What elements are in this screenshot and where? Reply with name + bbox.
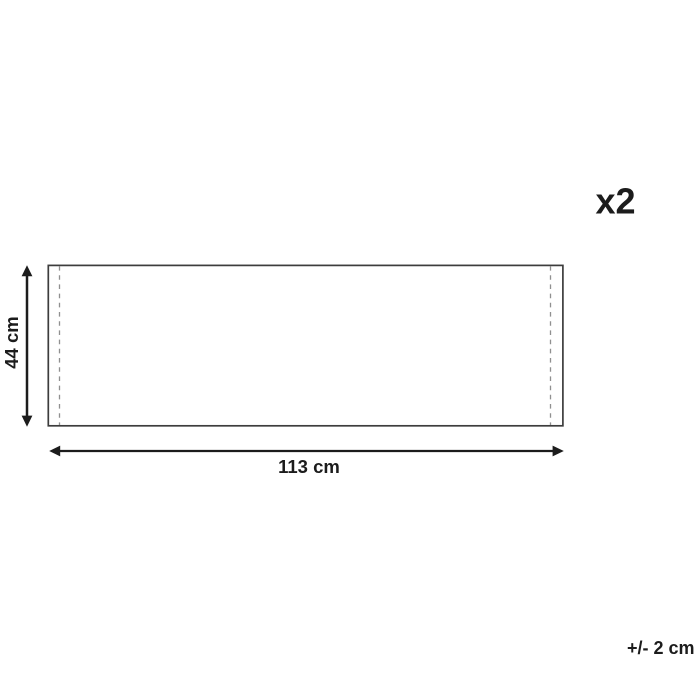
- svg-text:113 cm: 113 cm: [278, 456, 340, 477]
- svg-text:44 cm: 44 cm: [1, 316, 22, 368]
- svg-text:x2: x2: [595, 181, 635, 222]
- svg-text:+/- 2 cm: +/- 2 cm: [627, 638, 695, 658]
